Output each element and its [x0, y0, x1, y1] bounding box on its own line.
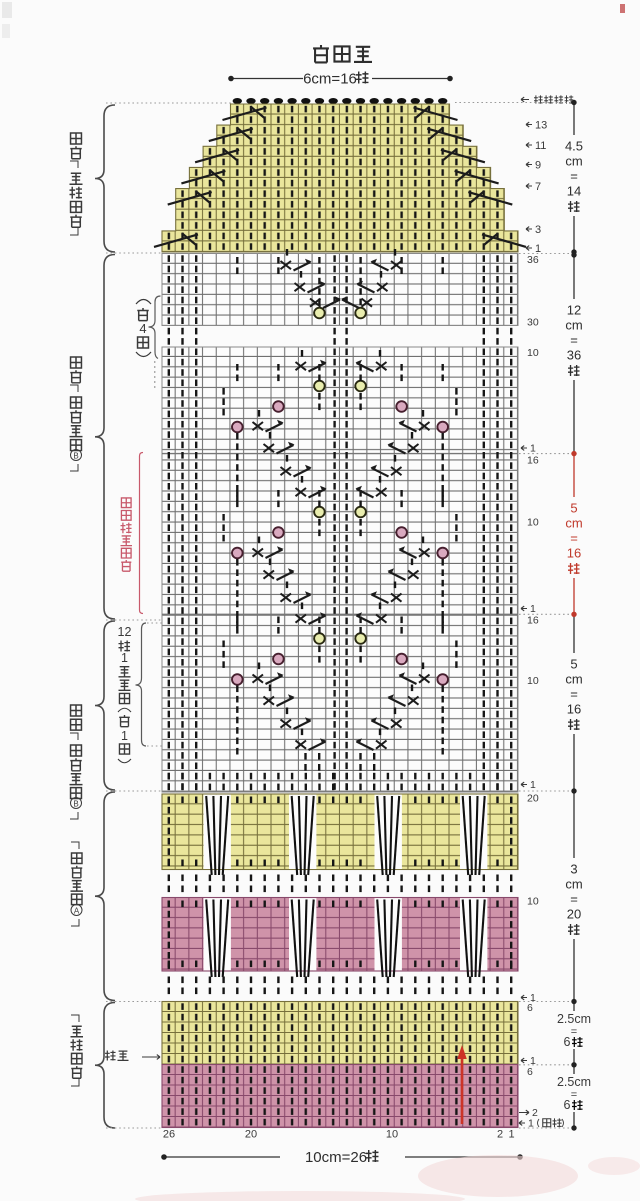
svg-text:1: 1	[530, 992, 536, 1004]
svg-text:3: 3	[570, 862, 577, 877]
svg-text:13: 13	[535, 119, 547, 131]
svg-text:2.5cm: 2.5cm	[557, 1012, 591, 1026]
svg-text:1: 1	[121, 729, 128, 743]
svg-text:10: 10	[527, 347, 539, 359]
svg-text:=: =	[570, 169, 578, 184]
svg-text:10: 10	[527, 517, 539, 529]
svg-text:12: 12	[118, 625, 132, 639]
svg-text:cm: cm	[565, 877, 582, 892]
svg-text:36: 36	[527, 254, 539, 266]
svg-text:20: 20	[567, 907, 581, 922]
svg-text:4: 4	[139, 321, 146, 336]
svg-text:=: =	[570, 687, 578, 702]
svg-text:16: 16	[527, 455, 539, 467]
svg-text:7: 7	[535, 181, 541, 193]
svg-text:16: 16	[527, 615, 539, 627]
svg-text:1: 1	[508, 1129, 514, 1141]
svg-text:cm: cm	[565, 154, 582, 169]
svg-text:cm: cm	[565, 516, 582, 531]
svg-text:B: B	[73, 452, 78, 461]
svg-text:B: B	[73, 800, 78, 809]
svg-text:16: 16	[567, 546, 581, 561]
svg-text:2: 2	[497, 1129, 503, 1141]
svg-text:=: =	[570, 892, 578, 907]
svg-text:1: 1	[528, 1118, 534, 1130]
svg-text:10: 10	[386, 1129, 398, 1141]
svg-text:cm: cm	[565, 672, 582, 687]
svg-text:14: 14	[567, 184, 581, 199]
svg-text:1: 1	[530, 603, 536, 615]
svg-text:=: =	[570, 333, 578, 348]
svg-text:20: 20	[527, 793, 539, 805]
svg-text:cm: cm	[565, 318, 582, 333]
svg-text:2.5cm: 2.5cm	[557, 1075, 591, 1089]
svg-text:10cm=26: 10cm=26	[305, 1149, 367, 1166]
svg-text:4.5: 4.5	[565, 139, 583, 154]
svg-text:6: 6	[564, 1098, 571, 1112]
svg-text:12: 12	[567, 303, 581, 318]
svg-text:16: 16	[567, 702, 581, 717]
svg-text:1: 1	[121, 651, 128, 665]
svg-text:A: A	[74, 907, 80, 916]
svg-text:20: 20	[245, 1129, 257, 1141]
svg-text:1: 1	[530, 779, 536, 791]
svg-text:1: 1	[530, 443, 536, 455]
svg-text:6: 6	[564, 1035, 571, 1049]
svg-text:30: 30	[527, 317, 539, 329]
svg-text:6: 6	[527, 1066, 533, 1078]
svg-text:10: 10	[527, 896, 539, 908]
svg-text:=: =	[571, 1089, 577, 1101]
svg-text:11: 11	[535, 140, 546, 152]
svg-text:9: 9	[535, 159, 541, 171]
svg-text:3: 3	[535, 224, 541, 236]
svg-text:5: 5	[570, 501, 577, 516]
svg-text:=: =	[570, 531, 578, 546]
svg-text:5: 5	[570, 657, 577, 672]
svg-text:=: =	[571, 1026, 577, 1038]
svg-text:6cm=16: 6cm=16	[303, 71, 357, 88]
svg-text:26: 26	[163, 1129, 175, 1141]
svg-text:10: 10	[527, 675, 539, 687]
svg-text:1: 1	[530, 1055, 536, 1067]
svg-text:36: 36	[567, 348, 581, 363]
